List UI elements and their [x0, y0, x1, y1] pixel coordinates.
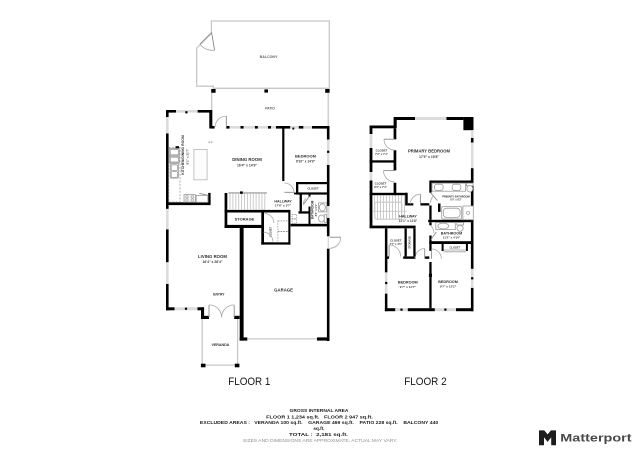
svg-text:LIVING ROOM: LIVING ROOM	[198, 254, 227, 259]
svg-text:HALLWAY: HALLWAY	[399, 214, 417, 218]
svg-text:PATIO: PATIO	[265, 107, 275, 111]
svg-text:STORAGE: STORAGE	[235, 216, 255, 221]
svg-text:9'5" x 8'2": 9'5" x 8'2"	[450, 199, 461, 202]
svg-text:7'3" x 7'4": 7'3" x 7'4"	[375, 152, 389, 156]
svg-text:9'10" x 14'9": 9'10" x 14'9"	[296, 160, 316, 164]
svg-text:BEDROOM: BEDROOM	[295, 154, 317, 159]
svg-text:STORAGE: STORAGE	[407, 236, 411, 249]
svg-text:FLOOR 1 1,234 sq.ft. FLOOR 2: FLOOR 1 1,234 sq.ft. FLOOR 2 947 sq.ft.	[266, 414, 373, 419]
svg-text:7'7" x 4'5": 7'7" x 4'5"	[390, 242, 403, 246]
svg-text:TOTAL : 2,181 sq.ft.: TOTAL : 2,181 sq.ft.	[289, 432, 348, 437]
svg-text:9'7" x 11'7": 9'7" x 11'7"	[400, 285, 417, 289]
svg-text:CLOSET: CLOSET	[390, 239, 402, 243]
svg-text:9'4" x 7'4": 9'4" x 7'4"	[374, 185, 388, 189]
svg-text:CLOSET: CLOSET	[307, 187, 319, 191]
svg-text:sq.ft.: sq.ft.	[313, 426, 324, 431]
svg-text:FLOOR 2: FLOOR 2	[404, 376, 446, 388]
svg-text:BEDROOM: BEDROOM	[398, 281, 418, 285]
svg-text:GARAGE: GARAGE	[274, 287, 293, 292]
svg-text:SIZES AND DIMENSIONS ARE APPRO: SIZES AND DIMENSIONS ARE APPROXIMATE, AC…	[243, 438, 397, 443]
svg-text:17'5" x 19'8": 17'5" x 19'8"	[419, 155, 439, 159]
svg-text:8'2" x 21'7": 8'2" x 21'7"	[185, 148, 189, 165]
svg-text:BATHROOM: BATHROOM	[310, 200, 314, 219]
svg-text:CLOSET: CLOSET	[450, 246, 461, 250]
svg-text:EXCLUDED AREAS : VERANDA 100: EXCLUDED AREAS : VERANDA 100 sq.ft. GARA…	[200, 420, 439, 425]
svg-text:8'2" x 5'1": 8'2" x 5'1"	[314, 203, 318, 217]
svg-text:BEDROOM: BEDROOM	[438, 280, 458, 284]
svg-text:DINING ROOM: DINING ROOM	[232, 157, 262, 162]
svg-text:BALCONY: BALCONY	[260, 55, 278, 59]
svg-text:16'4" x 14'9": 16'4" x 14'9"	[237, 163, 257, 167]
svg-text:11'2" x 4'10": 11'2" x 4'10"	[443, 236, 461, 240]
svg-text:16'4" x 28'4": 16'4" x 28'4"	[203, 260, 223, 264]
svg-text:9'7" x 15'2": 9'7" x 15'2"	[440, 285, 457, 289]
svg-text:GROSS INTERNAL AREA: GROSS INTERNAL AREA	[290, 408, 350, 413]
svg-text:PRIMARY BEDROOM: PRIMARY BEDROOM	[408, 149, 451, 154]
svg-text:CLOSET: CLOSET	[375, 181, 387, 185]
svg-text:FLOOR 1: FLOOR 1	[228, 376, 270, 388]
svg-text:VERANDA: VERANDA	[212, 343, 230, 347]
svg-text:CLOSET: CLOSET	[376, 148, 388, 152]
svg-text:Matterport: Matterport	[560, 433, 632, 445]
svg-text:ENTRY: ENTRY	[213, 293, 225, 297]
svg-text:12'1" x 11'8": 12'1" x 11'8"	[399, 219, 418, 223]
svg-text:17'6" x 3'7": 17'6" x 3'7"	[275, 204, 292, 208]
